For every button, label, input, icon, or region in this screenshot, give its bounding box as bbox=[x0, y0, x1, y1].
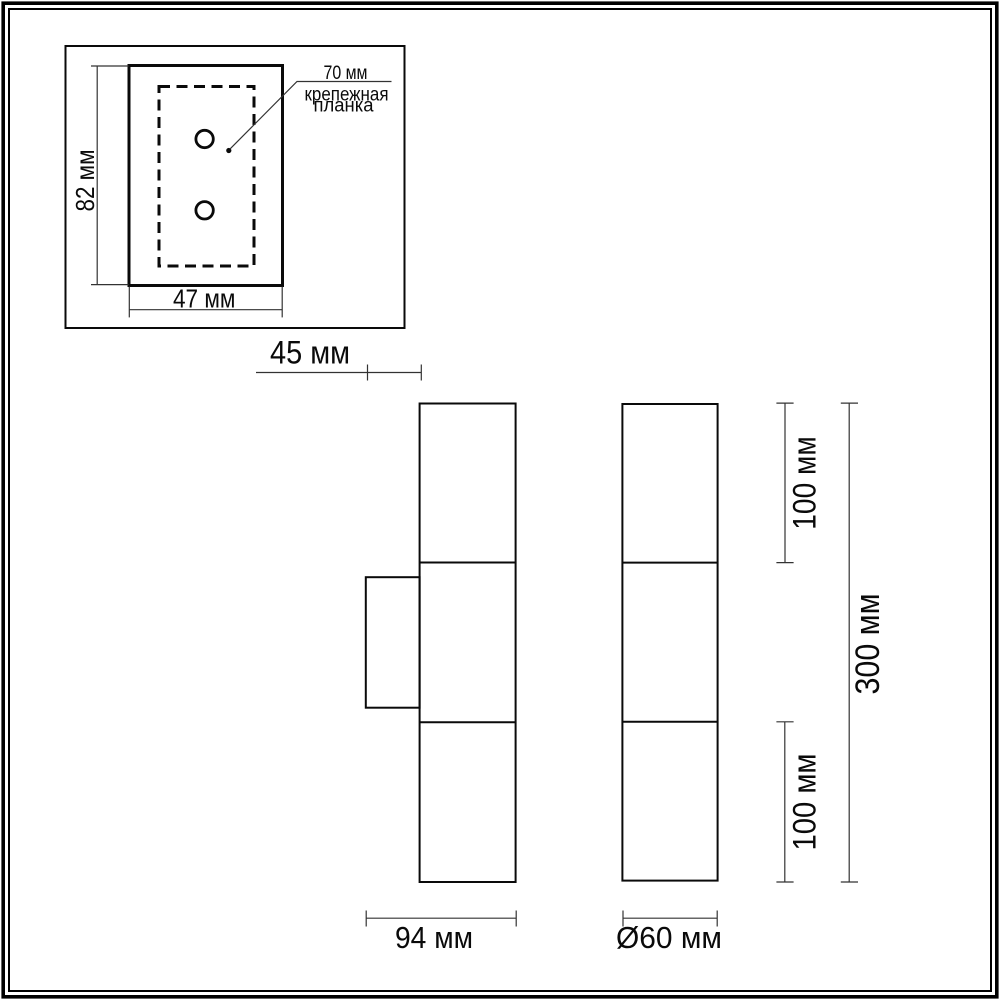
svg-text:94 мм: 94 мм bbox=[395, 920, 473, 955]
svg-text:70 мм: 70 мм bbox=[324, 63, 368, 84]
svg-text:100 мм: 100 мм bbox=[787, 436, 823, 530]
svg-text:Ø60 мм: Ø60 мм bbox=[616, 920, 722, 955]
svg-text:47 мм: 47 мм bbox=[173, 285, 236, 313]
svg-text:300 мм: 300 мм bbox=[849, 594, 887, 695]
svg-text:45 мм: 45 мм bbox=[270, 335, 350, 371]
svg-text:планка: планка bbox=[314, 96, 374, 117]
svg-text:82 мм: 82 мм bbox=[70, 150, 100, 212]
svg-text:100 мм: 100 мм bbox=[787, 754, 823, 851]
